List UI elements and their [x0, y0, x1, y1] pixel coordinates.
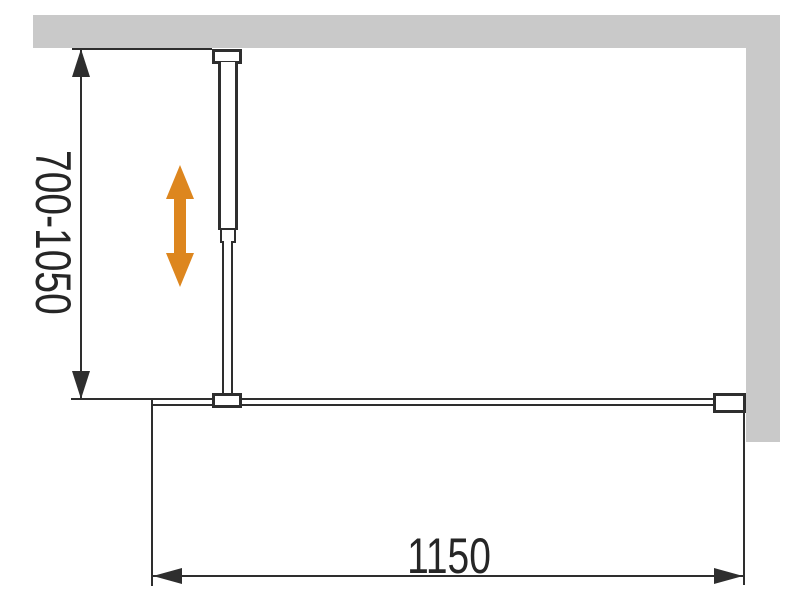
adjustability-arrow-shape — [166, 165, 194, 287]
vertical-double-arrow-icon — [165, 164, 195, 288]
extension-line-right — [743, 413, 745, 585]
arrow-down-icon — [72, 371, 90, 399]
horizontal-dimension-label: 1150 — [371, 531, 527, 581]
glass-wall-bracket — [713, 393, 746, 413]
bar-to-glass-connector — [212, 393, 242, 408]
support-bar-lower-rod — [222, 241, 233, 395]
extension-line-top — [72, 48, 212, 50]
wall-right — [746, 15, 780, 442]
arrow-up-icon — [72, 49, 90, 77]
glass-panel-top-edge — [71, 398, 713, 400]
arrow-right-icon — [714, 568, 743, 584]
shower-support-bar-installation-diagram: 700-1050 1150 — [0, 0, 800, 599]
vertical-dimension-label: 700-1050 — [28, 150, 78, 315]
arrow-left-icon — [153, 568, 182, 584]
support-bar-upper-tube — [218, 62, 238, 230]
wall-top — [33, 15, 780, 48]
extension-line-left — [151, 398, 153, 586]
